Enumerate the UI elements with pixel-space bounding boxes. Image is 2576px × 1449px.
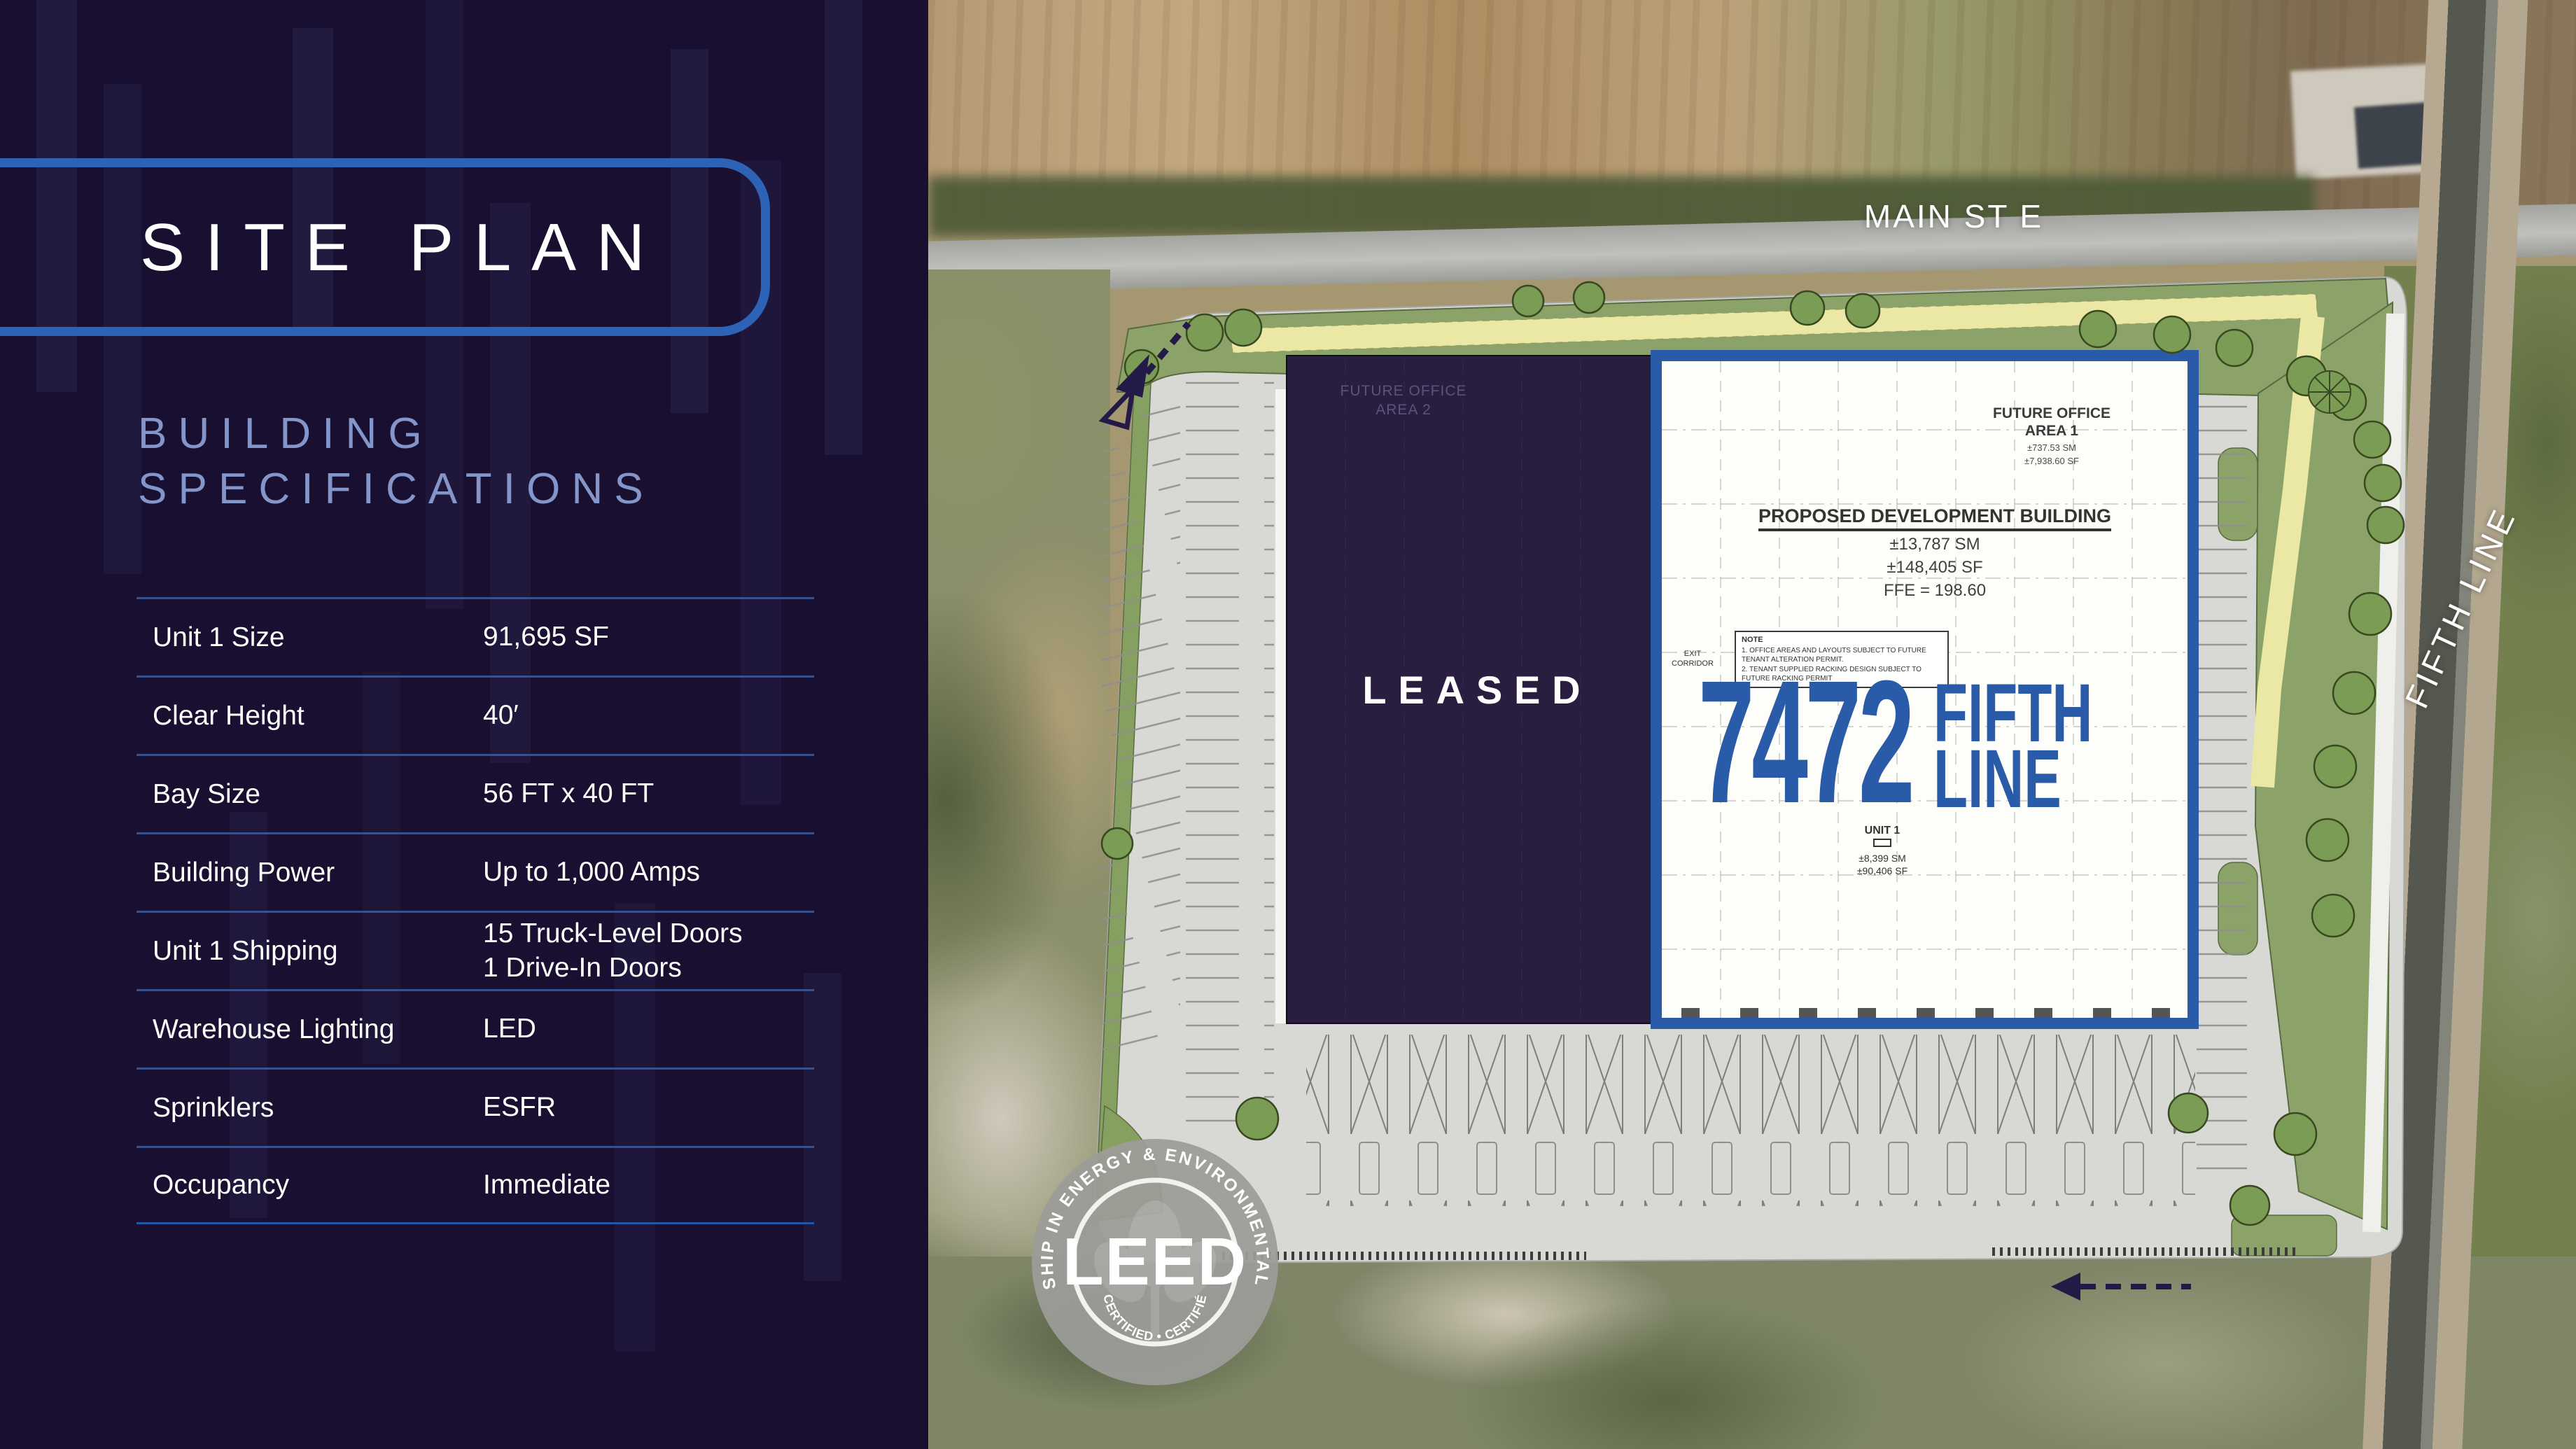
unit1-sm: ±8,399 SM	[1830, 852, 1935, 864]
table-row: Unit 1 Shipping 15 Truck-Level Doors 1 D…	[136, 911, 814, 989]
spec-value: 15 Truck-Level Doors 1 Drive-In Doors	[483, 917, 814, 986]
future-office-2-line1: FUTURE OFFICE	[1312, 381, 1494, 400]
spec-label: Clear Height	[136, 701, 483, 731]
spec-value: 56 FT x 40 FT	[483, 777, 814, 811]
spec-value: 91,695 SF	[483, 620, 814, 654]
spec-label: Unit 1 Shipping	[136, 936, 483, 967]
unit1-sf: ±90,406 SF	[1830, 864, 1935, 877]
dock-doors	[1681, 1008, 2170, 1018]
leed-wordmark: LEED	[1063, 1224, 1247, 1299]
future-office-1-annotation: FUTURE OFFICE AREA 1 ±737.53 SM ±7,938.6…	[1964, 405, 2139, 466]
spoke-tree	[2309, 371, 2351, 413]
future-office-1-line1: FUTURE OFFICE	[1964, 405, 2139, 422]
spec-label: Bay Size	[136, 779, 483, 810]
leased-label: LEASED	[1351, 667, 1592, 713]
table-row: Clear Height 40′	[136, 675, 814, 754]
table-row: Building Power Up to 1,000 Amps	[136, 832, 814, 911]
spec-value: Up to 1,000 Amps	[483, 855, 814, 890]
parking-stalls-left	[1186, 378, 1274, 1134]
unit1-label: UNIT 1	[1830, 825, 1935, 837]
leased-unit: LEASED	[1287, 356, 1656, 1023]
leed-certification-badge: LEED LEADERSHIP IN ENERGY & ENVIRONMENTA…	[1032, 1139, 1278, 1385]
building-specs-table: Unit 1 Size 91,695 SF Clear Height 40′ B…	[136, 597, 814, 1224]
proposed-ffe: FFE = 198.60	[1733, 581, 2136, 601]
proposed-title: PROPOSED DEVELOPMENT BUILDING	[1758, 505, 2111, 531]
truck-court-docks	[1306, 1035, 2195, 1206]
table-row: Unit 1 Size 91,695 SF	[136, 597, 814, 675]
section-heading-line2: SPECIFICATIONS	[138, 461, 654, 517]
proposed-sm: ±13,787 SM	[1733, 535, 2136, 554]
table-row: Bay Size 56 FT x 40 FT	[136, 754, 814, 832]
building-address-logo: 7472 FIFTH LINE	[1698, 676, 2167, 813]
exit-line1: EXIT	[1660, 650, 1725, 659]
unit1-tag-box	[1873, 839, 1891, 847]
section-heading-line1: BUILDING	[138, 406, 654, 461]
future-office-2-line2: AREA 2	[1312, 400, 1494, 419]
exit-line2: CORRIDOR	[1660, 659, 1725, 669]
spec-label: Warehouse Lighting	[136, 1014, 483, 1045]
spec-value: 40′	[483, 699, 814, 733]
spec-label: Sprinklers	[136, 1093, 483, 1123]
walkway-west	[1275, 389, 1287, 1023]
future-office-1-line2: AREA 1	[1964, 422, 2139, 440]
site-plan-map: MAIN ST E FIFTH LINE LEASED FUTURE OFFIC…	[928, 0, 2576, 1449]
logo-number: 7472	[1698, 676, 1912, 808]
main-street-label: MAIN ST E	[1807, 197, 2101, 235]
future-office-1-sm: ±737.53 SM	[1964, 442, 2139, 453]
logo-word-line: LINE	[1933, 746, 2092, 812]
spec-label: Building Power	[136, 857, 483, 888]
spec-panel: SITE PLAN BUILDING SPECIFICATIONS Unit 1…	[0, 0, 928, 1449]
page-title: SITE PLAN	[140, 160, 665, 336]
future-office-1-sf: ±7,938.60 SF	[1964, 456, 2139, 466]
table-row: Occupancy Immediate	[136, 1146, 814, 1224]
section-heading: BUILDING SPECIFICATIONS	[138, 406, 654, 517]
spec-value: LED	[483, 1012, 814, 1046]
table-row: Sprinklers ESFR	[136, 1067, 814, 1146]
spec-value: Immediate	[483, 1168, 814, 1203]
exit-corridor-annotation: EXIT CORRIDOR	[1660, 650, 1725, 669]
proposed-building-annotation: PROPOSED DEVELOPMENT BUILDING ±13,787 SM…	[1733, 505, 2136, 601]
future-office-2-annotation: FUTURE OFFICE AREA 2	[1312, 381, 1494, 420]
spec-value: ESFR	[483, 1091, 814, 1125]
table-row: Warehouse Lighting LED	[136, 989, 814, 1067]
proposed-sf: ±148,405 SF	[1733, 558, 2136, 577]
unit1-annotation: UNIT 1 ±8,399 SM ±90,406 SF	[1830, 825, 1935, 877]
spec-label: Occupancy	[136, 1170, 483, 1200]
parking-stalls-left-angled	[1102, 396, 1180, 1054]
parking-stalls-right	[2197, 392, 2264, 1183]
spec-label: Unit 1 Size	[136, 622, 483, 653]
note-heading: NOTE	[1742, 636, 1942, 644]
exit-arrow-icon	[2051, 1273, 2191, 1301]
